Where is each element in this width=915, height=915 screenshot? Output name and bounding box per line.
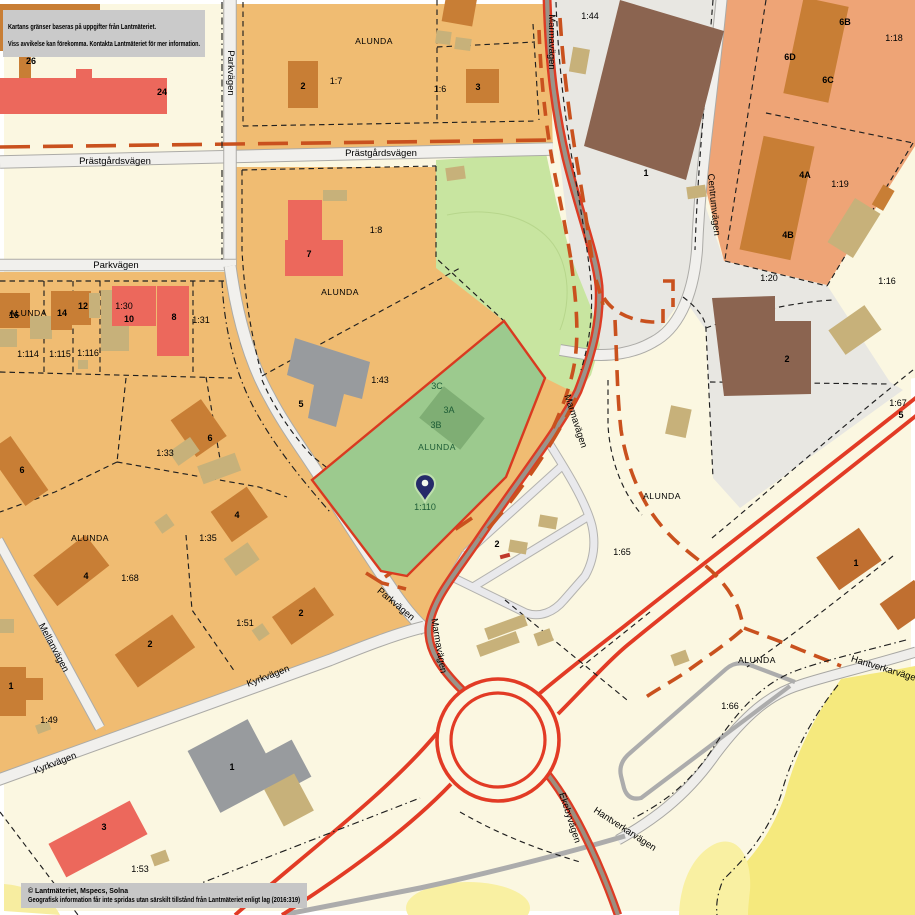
svg-text:1:65: 1:65 — [613, 547, 631, 557]
svg-text:14: 14 — [57, 308, 67, 318]
svg-text:1:51: 1:51 — [236, 618, 254, 628]
svg-text:1: 1 — [643, 168, 648, 178]
svg-text:Parkvägen: Parkvägen — [225, 50, 236, 95]
svg-text:Parkvägen: Parkvägen — [93, 260, 138, 271]
svg-text:1:31: 1:31 — [192, 315, 210, 325]
svg-text:Kartans gränser baseras på upp: Kartans gränser baseras på uppgifter frå… — [8, 22, 156, 31]
svg-text:4: 4 — [83, 571, 88, 581]
svg-text:Geografisk information får int: Geografisk information får inte spridas … — [28, 896, 300, 904]
svg-text:3: 3 — [475, 82, 480, 92]
svg-text:4A: 4A — [799, 170, 811, 180]
svg-text:1:7: 1:7 — [330, 76, 343, 86]
svg-text:1:114: 1:114 — [17, 349, 39, 359]
svg-text:1:116: 1:116 — [77, 348, 99, 358]
svg-text:8: 8 — [171, 312, 176, 322]
svg-text:6C: 6C — [822, 75, 834, 85]
svg-text:3: 3 — [101, 822, 106, 832]
svg-text:© Lantmäteriet, Mspecs, Solna: © Lantmäteriet, Mspecs, Solna — [28, 887, 128, 895]
svg-text:2: 2 — [298, 608, 303, 618]
svg-text:ALUNDA: ALUNDA — [643, 491, 681, 501]
svg-text:6D: 6D — [784, 52, 796, 62]
svg-text:6: 6 — [19, 465, 24, 475]
svg-text:1:49: 1:49 — [40, 715, 58, 725]
svg-text:2: 2 — [147, 639, 152, 649]
svg-text:1: 1 — [853, 558, 858, 568]
svg-text:ALUNDA: ALUNDA — [321, 287, 359, 297]
svg-text:1:19: 1:19 — [831, 179, 849, 189]
svg-text:1: 1 — [8, 681, 13, 691]
svg-text:2: 2 — [300, 81, 305, 91]
svg-text:26: 26 — [26, 56, 36, 66]
svg-text:1:44: 1:44 — [581, 11, 599, 21]
svg-text:6B: 6B — [839, 17, 851, 27]
svg-text:7: 7 — [306, 249, 311, 259]
svg-text:3A: 3A — [443, 405, 454, 415]
svg-text:2: 2 — [784, 354, 789, 364]
svg-text:1:20: 1:20 — [760, 273, 778, 283]
svg-text:Marmavägen: Marmavägen — [546, 14, 557, 69]
svg-text:16: 16 — [9, 310, 19, 320]
svg-text:12: 12 — [78, 301, 88, 311]
svg-text:1:18: 1:18 — [885, 33, 903, 43]
svg-text:1:16: 1:16 — [878, 276, 896, 286]
svg-text:ALUNDA: ALUNDA — [71, 533, 109, 543]
svg-text:1:66: 1:66 — [721, 701, 739, 711]
svg-text:2: 2 — [494, 539, 499, 549]
svg-text:24: 24 — [157, 87, 167, 97]
svg-text:Prästgårdsvägen: Prästgårdsvägen — [345, 148, 417, 159]
svg-text:1:35: 1:35 — [199, 533, 217, 543]
svg-text:1:68: 1:68 — [121, 573, 139, 583]
svg-text:1:30: 1:30 — [115, 301, 133, 311]
svg-text:10: 10 — [124, 314, 134, 324]
svg-text:3B: 3B — [430, 420, 441, 430]
svg-text:ALUNDA: ALUNDA — [738, 655, 776, 665]
svg-text:4: 4 — [234, 510, 239, 520]
svg-text:ALUNDA: ALUNDA — [418, 442, 456, 452]
svg-text:1:67: 1:67 — [889, 398, 907, 408]
svg-text:1:8: 1:8 — [370, 225, 383, 235]
svg-text:Prästgårdsvägen: Prästgårdsvägen — [79, 156, 151, 167]
svg-text:5: 5 — [898, 410, 903, 420]
svg-text:3C: 3C — [431, 381, 443, 391]
svg-text:ALUNDA: ALUNDA — [355, 36, 393, 46]
svg-text:1:115: 1:115 — [49, 349, 71, 359]
svg-text:6: 6 — [207, 433, 212, 443]
svg-text:4B: 4B — [782, 230, 794, 240]
svg-text:1:6: 1:6 — [434, 84, 447, 94]
svg-text:1:33: 1:33 — [156, 448, 174, 458]
svg-text:5: 5 — [298, 399, 303, 409]
svg-text:1: 1 — [229, 762, 234, 772]
svg-text:1:43: 1:43 — [371, 375, 389, 385]
svg-text:Viss avvikelse kan förekomma.: Viss avvikelse kan förekomma. Kontakta L… — [8, 39, 200, 48]
svg-text:1:53: 1:53 — [131, 864, 149, 874]
